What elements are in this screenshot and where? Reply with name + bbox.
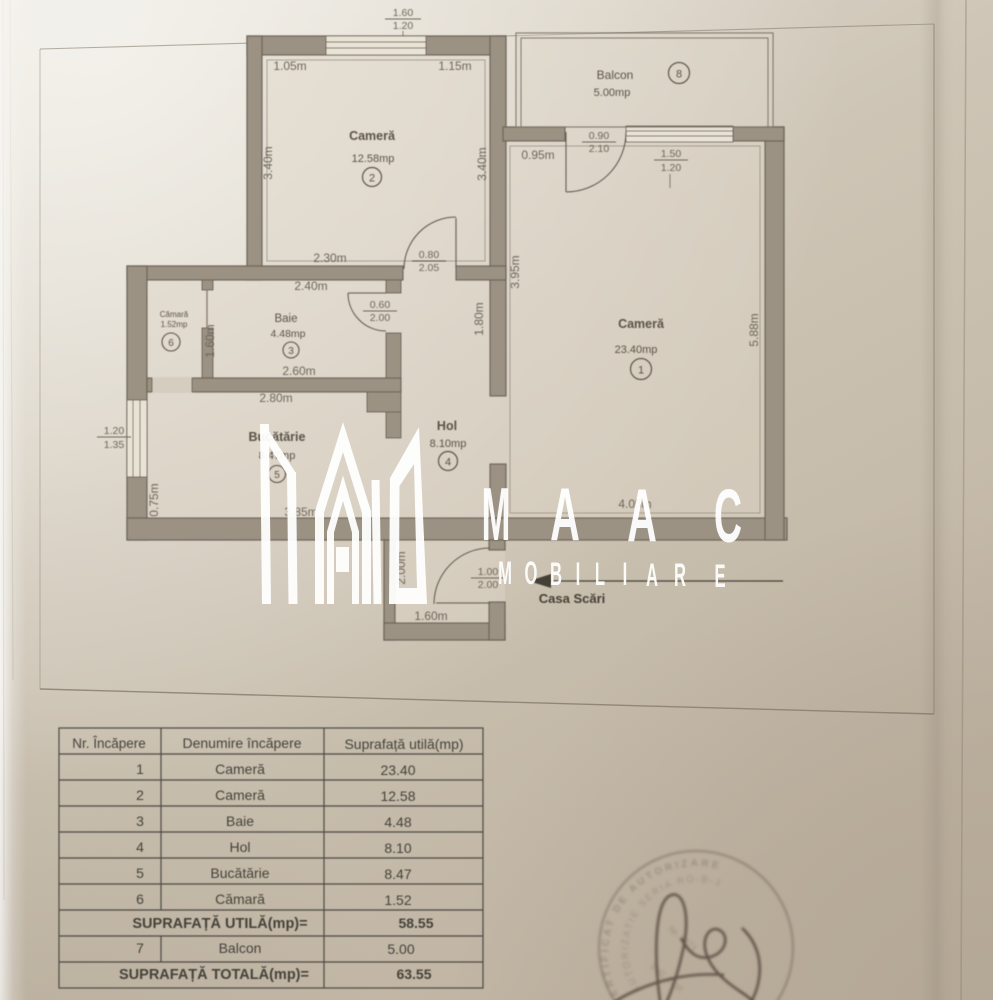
svg-text:Cameră: Cameră <box>618 317 665 331</box>
svg-text:Casa Scări: Casa Scări <box>539 591 606 606</box>
svg-text:Cămară: Cămară <box>215 891 265 907</box>
svg-text:5.00mp: 5.00mp <box>594 87 631 99</box>
svg-text:4.48: 4.48 <box>384 814 411 830</box>
svg-text:2: 2 <box>369 173 375 185</box>
svg-text:8: 8 <box>676 69 682 81</box>
svg-text:12.58: 12.58 <box>380 788 415 804</box>
svg-text:1.20: 1.20 <box>104 425 125 437</box>
svg-text:5: 5 <box>136 865 144 881</box>
svg-text:Cameră: Cameră <box>215 787 265 803</box>
svg-text:5.00: 5.00 <box>387 941 414 957</box>
svg-text:1.05m: 1.05m <box>273 59 306 73</box>
svg-text:Balcon: Balcon <box>597 68 634 82</box>
svg-text:Baie: Baie <box>226 813 254 829</box>
svg-text:1.60: 1.60 <box>393 7 414 19</box>
svg-text:3.40m: 3.40m <box>261 146 275 179</box>
svg-text:23.40: 23.40 <box>380 762 415 778</box>
svg-text:4: 4 <box>445 457 451 469</box>
svg-text:Hol: Hol <box>229 839 250 855</box>
svg-text:2: 2 <box>136 787 144 803</box>
svg-text:2.00: 2.00 <box>478 579 499 591</box>
svg-text:1.52mp: 1.52mp <box>161 320 188 329</box>
svg-text:23.40mp: 23.40mp <box>615 344 658 356</box>
svg-text:3: 3 <box>136 813 144 829</box>
svg-text:6: 6 <box>168 338 174 349</box>
svg-text:O: O <box>525 556 538 591</box>
svg-text:1.20: 1.20 <box>661 162 682 174</box>
svg-text:L: L <box>595 557 605 592</box>
svg-text:1.50: 1.50 <box>661 148 682 160</box>
svg-text:63.55: 63.55 <box>396 966 431 982</box>
svg-text:0.80: 0.80 <box>419 249 440 261</box>
svg-text:Bucătărie: Bucătărie <box>210 865 269 881</box>
svg-text:A: A <box>627 473 657 557</box>
svg-text:Cameră: Cameră <box>349 129 396 143</box>
svg-text:2.80m: 2.80m <box>259 391 292 405</box>
svg-text:0.95m: 0.95m <box>521 148 554 162</box>
svg-text:8.47: 8.47 <box>384 866 411 882</box>
svg-text:I: I <box>576 557 581 592</box>
svg-text:E: E <box>714 559 725 594</box>
svg-text:1.60m: 1.60m <box>203 324 217 357</box>
svg-text:1.15m: 1.15m <box>438 59 471 73</box>
svg-text:1.60m: 1.60m <box>414 609 447 623</box>
svg-text:2.40m: 2.40m <box>294 279 327 293</box>
svg-text:3: 3 <box>288 346 294 357</box>
svg-text:SUPRAFAȚĂ TOTALĂ(mp)=: SUPRAFAȚĂ TOTALĂ(mp)= <box>119 966 309 983</box>
svg-text:A: A <box>646 558 658 593</box>
svg-text:2.00: 2.00 <box>370 312 391 324</box>
svg-text:1.35: 1.35 <box>104 439 125 451</box>
svg-text:4.48mp: 4.48mp <box>270 328 305 340</box>
svg-text:2.10: 2.10 <box>589 143 610 155</box>
svg-text:Cameră: Cameră <box>215 761 265 777</box>
svg-text:2.60m: 2.60m <box>282 364 315 378</box>
svg-text:M: M <box>482 473 511 557</box>
svg-text:0.90: 0.90 <box>589 130 610 142</box>
svg-text:5.88m: 5.88m <box>747 313 761 346</box>
svg-text:1.52: 1.52 <box>384 892 411 908</box>
svg-text:6: 6 <box>136 891 144 907</box>
svg-text:Cămară: Cămară <box>160 310 189 319</box>
svg-text:1.20: 1.20 <box>393 20 414 32</box>
svg-text:8.10: 8.10 <box>384 840 411 856</box>
svg-text:1: 1 <box>136 761 144 777</box>
svg-text:3.40m: 3.40m <box>475 147 489 180</box>
svg-text:8.10mp: 8.10mp <box>430 438 467 450</box>
svg-text:1.00: 1.00 <box>478 566 499 578</box>
svg-text:0.60: 0.60 <box>370 299 391 311</box>
svg-text:R: R <box>674 558 686 593</box>
svg-text:Bucătărie: Bucătărie <box>249 430 306 444</box>
svg-text:1: 1 <box>638 365 644 377</box>
svg-text:I: I <box>623 557 628 592</box>
svg-text:Hol: Hol <box>437 419 457 433</box>
svg-text:A: A <box>550 472 580 556</box>
svg-text:SUPRAFAȚĂ UTILĂ(mp)=: SUPRAFAȚĂ UTILĂ(mp)= <box>132 915 307 932</box>
svg-text:3.95m: 3.95m <box>508 255 522 288</box>
svg-text:Balcon: Balcon <box>219 940 262 956</box>
svg-text:12.58mp: 12.58mp <box>352 153 395 165</box>
svg-text:B: B <box>550 557 562 592</box>
svg-text:7: 7 <box>136 940 144 956</box>
svg-text:1.80m: 1.80m <box>472 302 486 335</box>
svg-text:Denumire încăpere: Denumire încăpere <box>182 735 301 751</box>
svg-text:Suprafață utilă(mp): Suprafață utilă(mp) <box>344 736 463 752</box>
svg-text:5: 5 <box>274 470 280 481</box>
svg-text:Baie: Baie <box>274 313 297 325</box>
svg-text:M: M <box>498 556 512 591</box>
svg-text:4: 4 <box>136 839 144 855</box>
svg-text:0.75m: 0.75m <box>147 483 161 516</box>
svg-text:2.30m: 2.30m <box>313 251 346 265</box>
svg-text:2.05: 2.05 <box>419 262 440 274</box>
svg-text:Nr. Încăpere: Nr. Încăpere <box>72 736 146 751</box>
svg-text:58.55: 58.55 <box>398 915 433 931</box>
svg-text:C: C <box>714 474 742 558</box>
